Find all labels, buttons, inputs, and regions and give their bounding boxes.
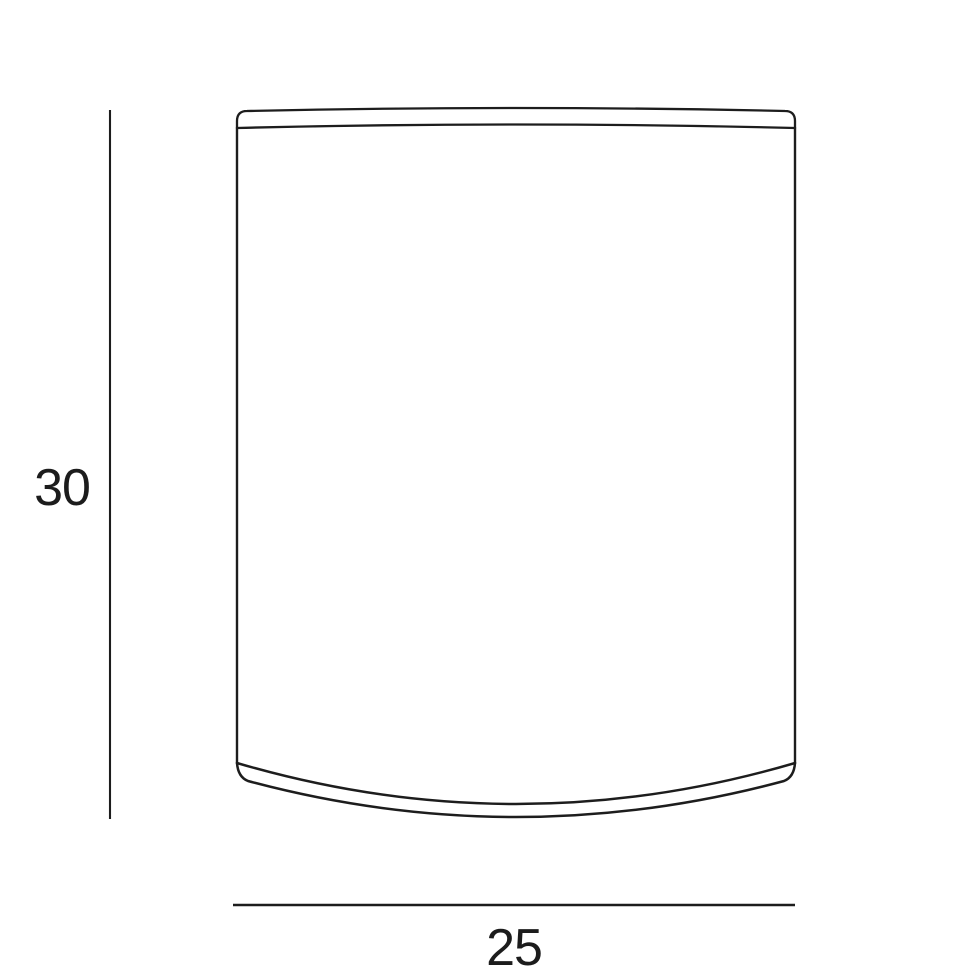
cylinder-bottom-lower-arc <box>237 763 795 817</box>
width-dimension-label: 25 <box>454 922 574 974</box>
cylinder-top-band-bottom-line <box>237 125 795 129</box>
height-dimension-label: 30 <box>26 462 98 514</box>
cylinder-diagram <box>0 0 970 971</box>
dimension-drawing-canvas: 30 25 <box>0 0 970 971</box>
dimension-lines-group <box>110 110 795 905</box>
cylinder-outline-group <box>237 108 795 817</box>
